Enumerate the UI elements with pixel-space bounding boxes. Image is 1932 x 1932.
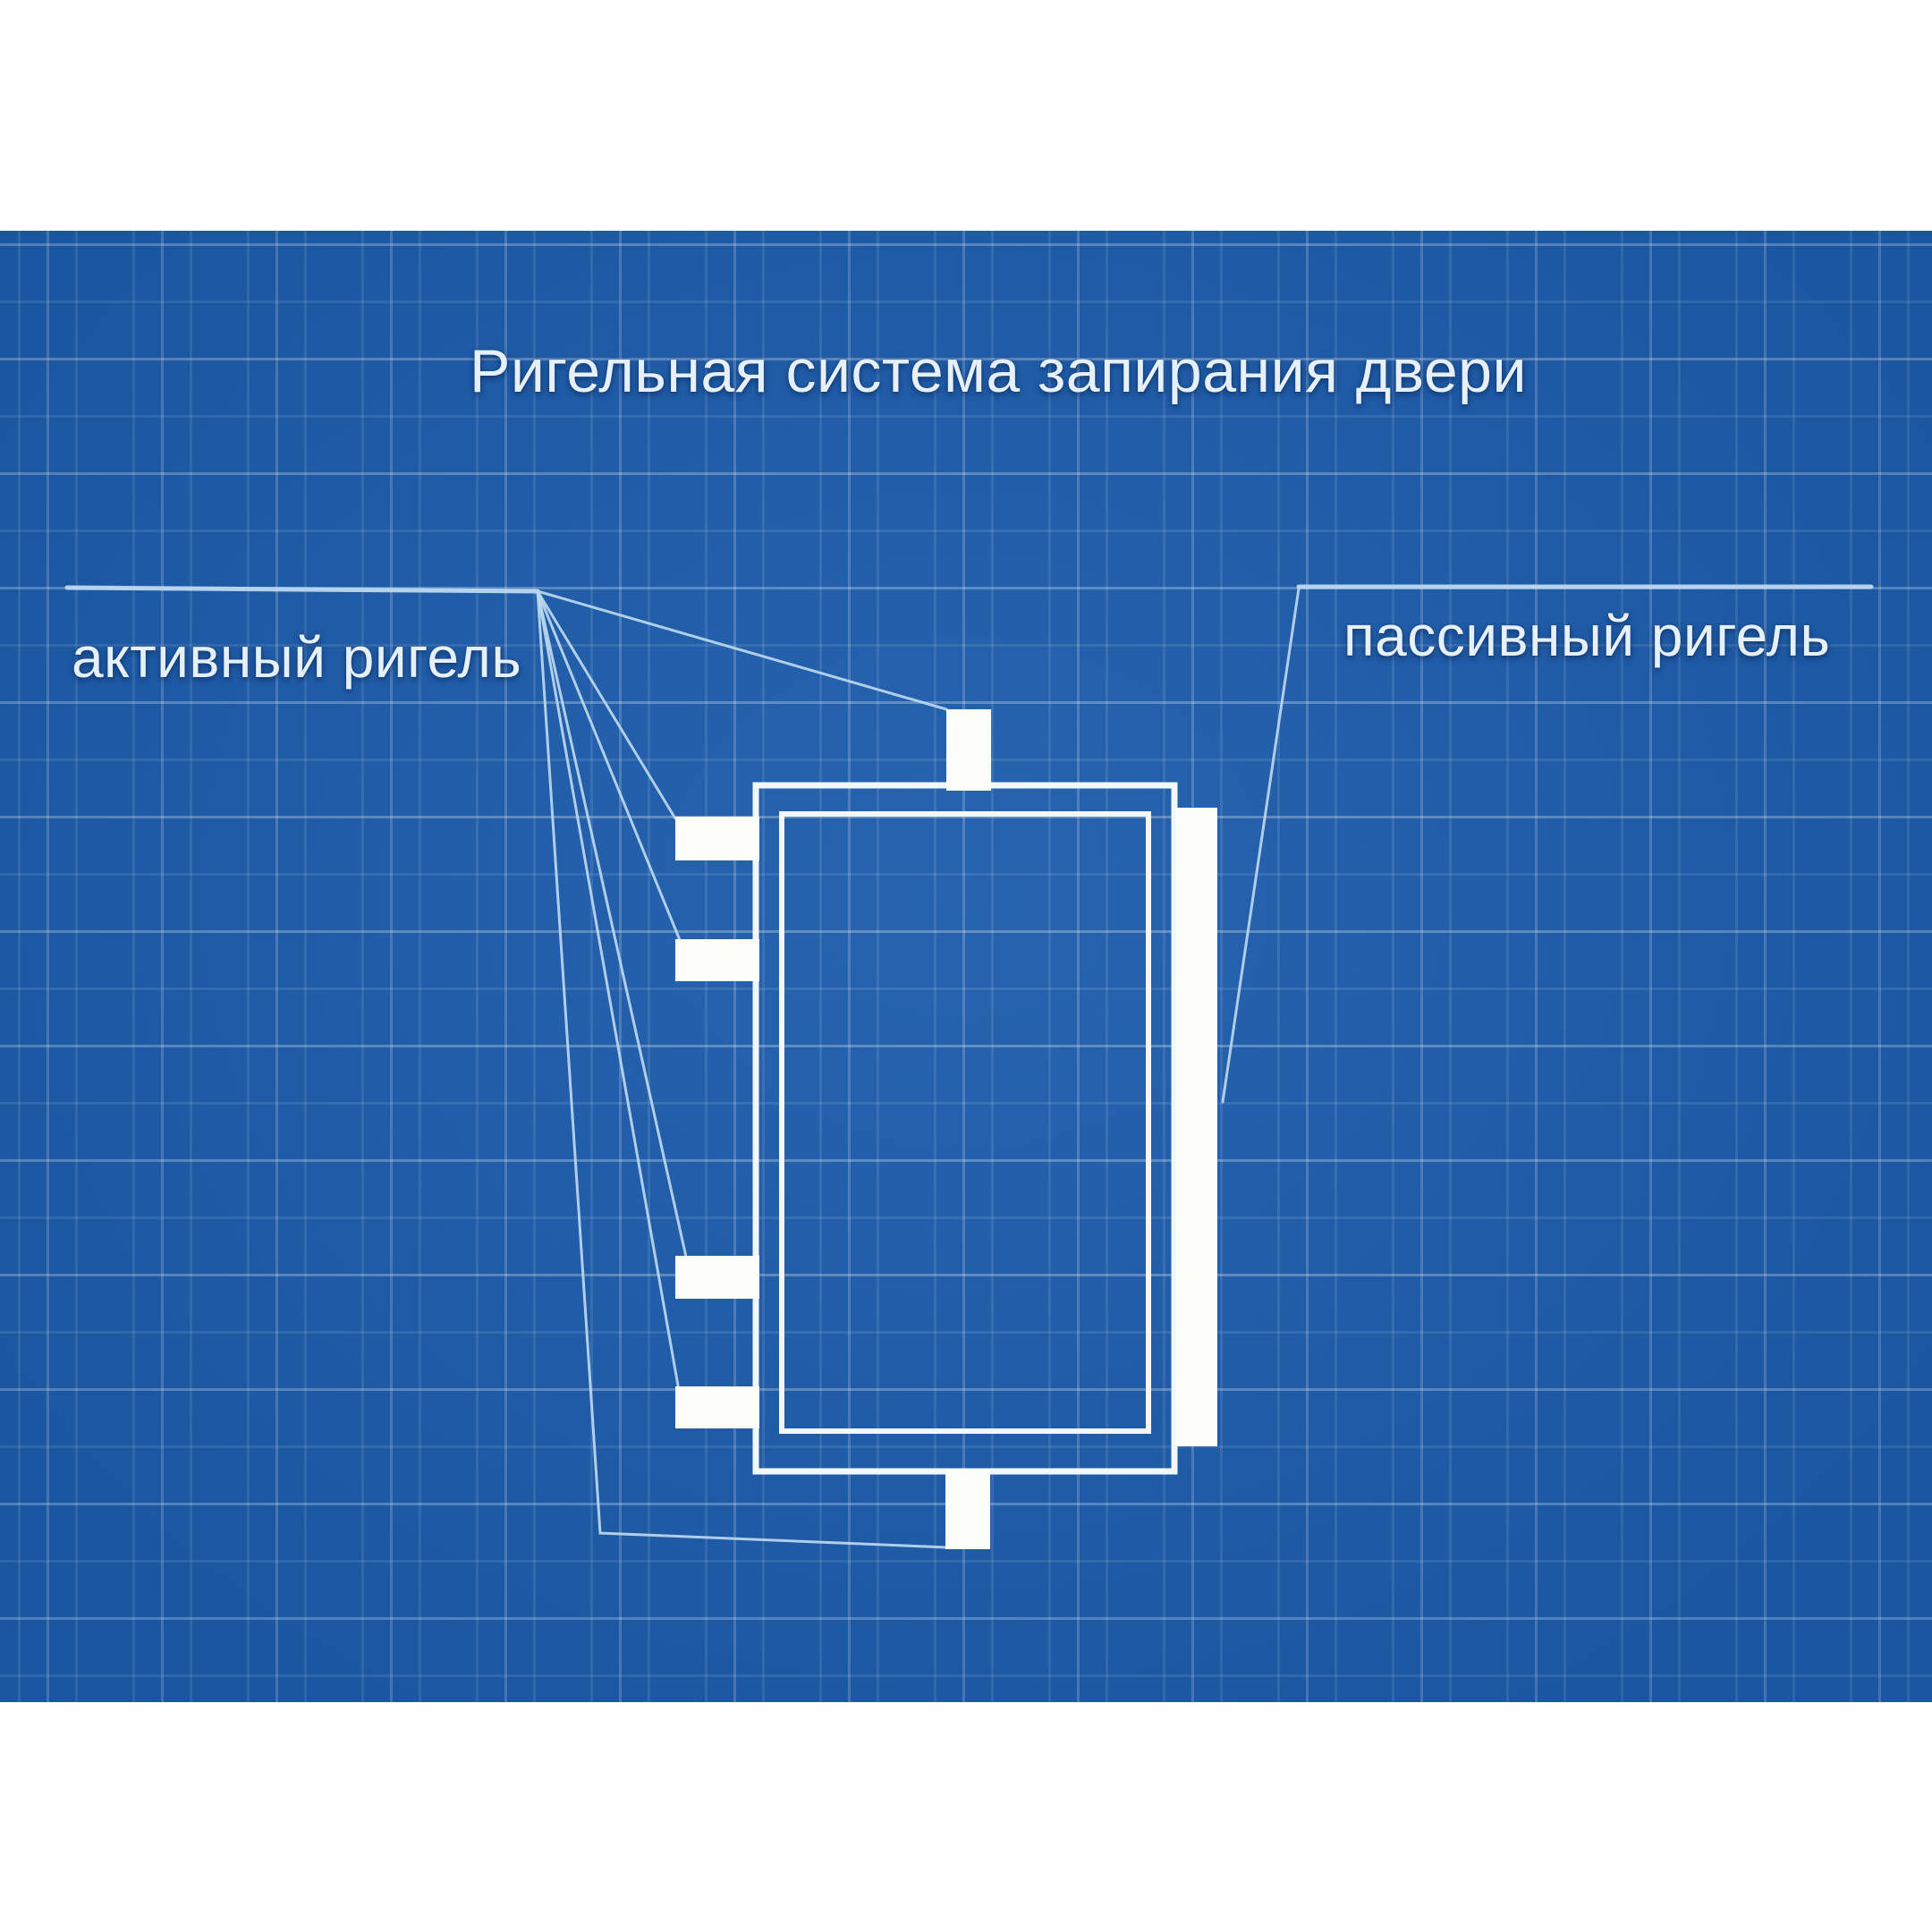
- lock-assembly: [675, 709, 1217, 1549]
- active-label-underline: [67, 588, 538, 591]
- page: { "title": "Ригельная система запирания …: [0, 0, 1932, 1932]
- active-bolt-left-3: [675, 1256, 759, 1299]
- diagram-title: Ригельная система запирания двери: [470, 336, 1527, 406]
- active-bolt-label: активный ригель: [72, 624, 521, 691]
- passive-bolt-bar: [1176, 808, 1217, 1446]
- active-bolt-left-4: [675, 1386, 759, 1428]
- lock-body-inner: [782, 814, 1148, 1431]
- lock-body-outer: [756, 785, 1174, 1471]
- active-bolt-top: [946, 709, 991, 791]
- lock-diagram: [0, 0, 1932, 1932]
- active-bolt-left-2: [675, 939, 759, 981]
- active-bolt-bottom: [945, 1470, 990, 1549]
- leader-to-left-bolt-4: [538, 591, 678, 1385]
- active-bolt-left-1: [675, 817, 759, 860]
- callout-active-bolt: [67, 588, 946, 1547]
- leader-to-passive-bolt: [1223, 589, 1299, 1102]
- passive-bolt-label: пассивный ригель: [1343, 603, 1830, 669]
- leader-to-left-bolt-2: [538, 591, 680, 940]
